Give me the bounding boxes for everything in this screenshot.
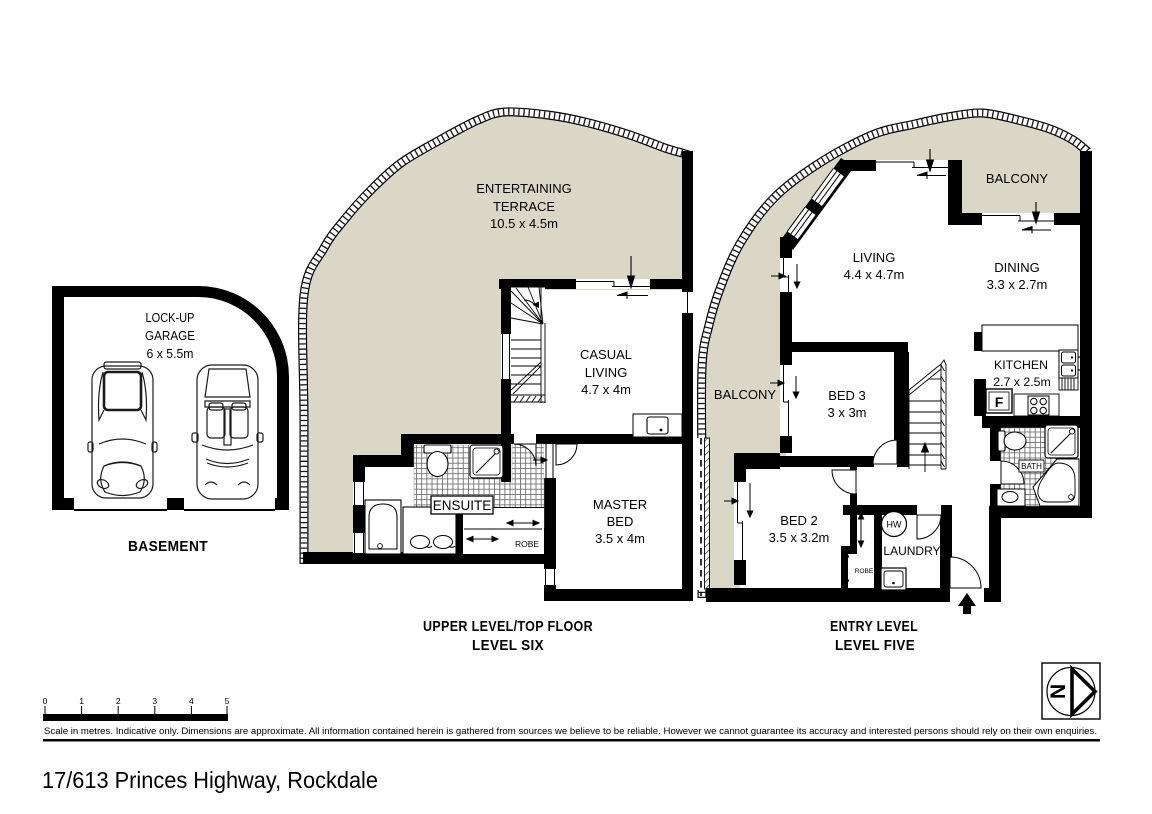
svg-text:17/613 Princes Highway, Rockda: 17/613 Princes Highway, Rockdale xyxy=(42,767,378,793)
svg-text:ROBE: ROBE xyxy=(515,539,539,549)
svg-text:MASTER: MASTER xyxy=(593,497,647,512)
svg-text:HW: HW xyxy=(887,520,902,530)
svg-text:2: 2 xyxy=(116,696,121,706)
svg-text:F: F xyxy=(995,394,1004,410)
svg-text:3.3 x 2.7m: 3.3 x 2.7m xyxy=(987,277,1048,292)
svg-text:UPPER LEVEL/TOP FLOOR: UPPER LEVEL/TOP FLOOR xyxy=(423,618,593,635)
svg-text:4: 4 xyxy=(189,696,194,706)
svg-text:ENTERTAINING: ENTERTAINING xyxy=(476,181,572,196)
svg-text:2.7 x 2.5m: 2.7 x 2.5m xyxy=(993,375,1050,389)
svg-text:BASEMENT: BASEMENT xyxy=(128,538,208,555)
svg-text:DINING: DINING xyxy=(994,260,1040,275)
svg-text:KITCHEN: KITCHEN xyxy=(994,358,1048,372)
svg-text:3.5 x 3.2m: 3.5 x 3.2m xyxy=(769,530,830,545)
svg-text:BATH: BATH xyxy=(1021,462,1042,471)
svg-text:3 x 3m: 3 x 3m xyxy=(827,405,866,420)
svg-text:BALCONY: BALCONY xyxy=(986,171,1048,186)
svg-text:ENSUITE: ENSUITE xyxy=(433,498,492,513)
svg-text:3: 3 xyxy=(152,696,157,706)
svg-text:LIVING: LIVING xyxy=(853,250,896,265)
svg-text:4.4 x 4.7m: 4.4 x 4.7m xyxy=(844,267,905,282)
svg-text:ROBE: ROBE xyxy=(855,568,874,575)
svg-text:BALCONY: BALCONY xyxy=(714,387,776,402)
svg-text:3.5 x 4m: 3.5 x 4m xyxy=(595,531,645,546)
svg-text:5: 5 xyxy=(225,696,230,706)
svg-text:N: N xyxy=(1046,684,1069,699)
svg-text:CASUAL: CASUAL xyxy=(580,347,632,362)
svg-text:LIVING: LIVING xyxy=(585,365,628,380)
svg-text:Scale in metres. Indicative on: Scale in metres. Indicative only. Dimens… xyxy=(44,726,1097,737)
svg-text:1: 1 xyxy=(79,696,84,706)
svg-text:BED 3: BED 3 xyxy=(828,388,866,403)
svg-text:LOCK-UP: LOCK-UP xyxy=(146,310,195,325)
svg-text:LEVEL FIVE: LEVEL FIVE xyxy=(835,637,915,654)
svg-text:LEVEL SIX: LEVEL SIX xyxy=(472,637,544,654)
svg-text:BED 2: BED 2 xyxy=(780,513,818,528)
svg-text:6 x 5.5m: 6 x 5.5m xyxy=(147,346,194,361)
svg-text:BED: BED xyxy=(607,514,634,529)
svg-text:4.7 x 4m: 4.7 x 4m xyxy=(581,382,631,397)
svg-text:TERRACE: TERRACE xyxy=(493,199,555,214)
svg-text:GARAGE: GARAGE xyxy=(145,328,195,343)
svg-text:LAUNDRY: LAUNDRY xyxy=(883,544,940,558)
svg-text:ENTRY LEVEL: ENTRY LEVEL xyxy=(830,618,918,635)
svg-text:0: 0 xyxy=(43,696,48,706)
svg-text:10.5 x 4.5m: 10.5 x 4.5m xyxy=(490,216,558,231)
